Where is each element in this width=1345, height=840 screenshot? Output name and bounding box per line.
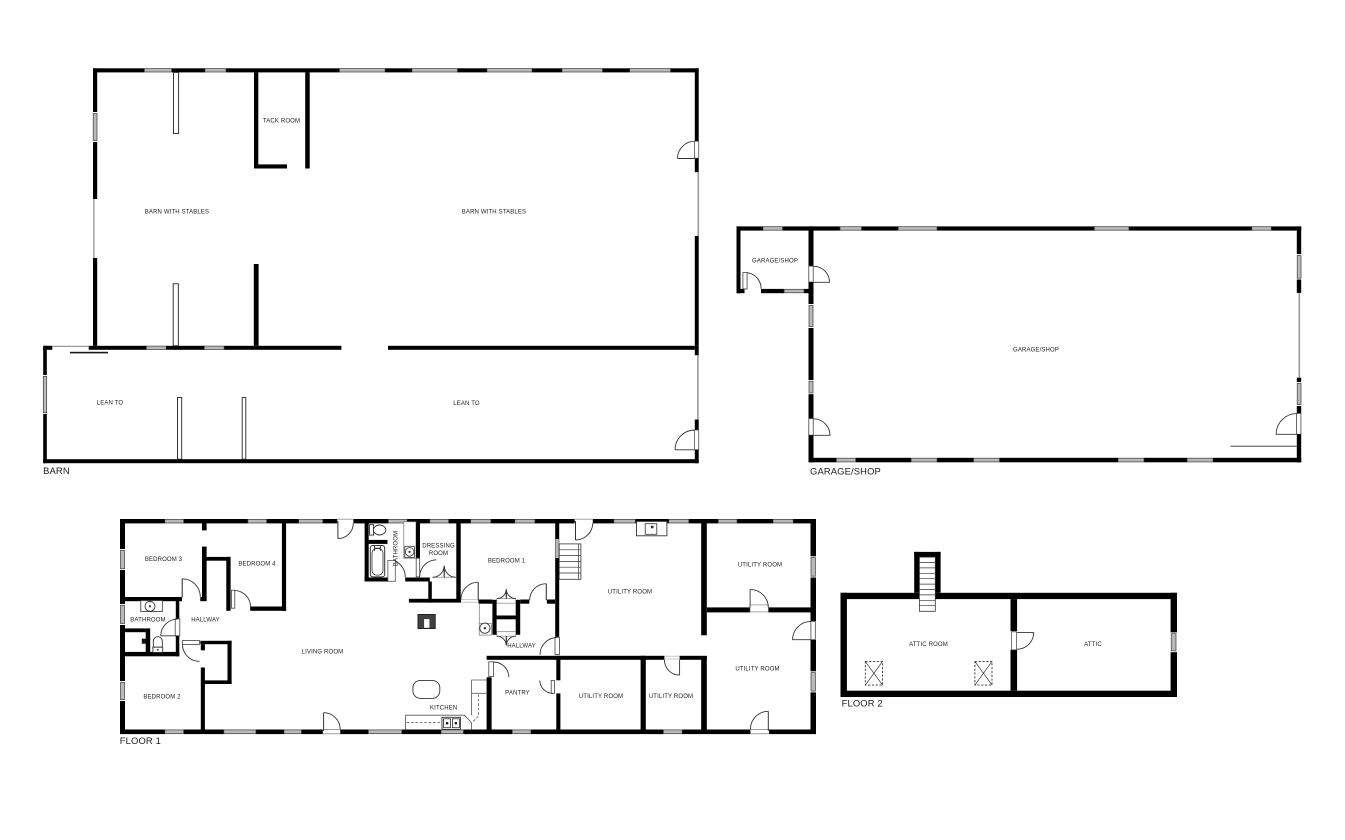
- svg-text:ROOM: ROOM: [429, 551, 448, 557]
- svg-text:HALLWAY: HALLWAY: [507, 643, 536, 649]
- svg-text:BARN WITH STABLES: BARN WITH STABLES: [462, 210, 526, 216]
- svg-text:BATHROOM: BATHROOM: [394, 531, 400, 566]
- svg-text:LEAN TO: LEAN TO: [453, 401, 480, 407]
- svg-text:BEDROOM 1: BEDROOM 1: [488, 559, 526, 565]
- svg-text:BEDROOM 3: BEDROOM 3: [145, 557, 183, 563]
- svg-text:BEDROOM 4: BEDROOM 4: [238, 562, 276, 568]
- svg-text:FLOOR 1: FLOOR 1: [120, 735, 161, 746]
- svg-text:DRESSING: DRESSING: [422, 544, 455, 550]
- svg-text:TACK ROOM: TACK ROOM: [263, 119, 300, 125]
- svg-text:BARN WITH STABLES: BARN WITH STABLES: [145, 210, 209, 216]
- svg-text:BATHROOM: BATHROOM: [130, 617, 165, 623]
- svg-text:PANTRY: PANTRY: [505, 691, 530, 697]
- svg-text:UTILITY ROOM: UTILITY ROOM: [649, 694, 693, 700]
- svg-text:BARN: BARN: [43, 465, 70, 476]
- svg-text:UTILITY ROOM: UTILITY ROOM: [735, 667, 779, 673]
- svg-text:LIVING ROOM: LIVING ROOM: [302, 649, 344, 655]
- svg-text:KITCHEN: KITCHEN: [430, 705, 457, 711]
- svg-text:GARAGE/SHOP: GARAGE/SHOP: [810, 465, 881, 476]
- svg-text:GARAGE/SHOP: GARAGE/SHOP: [1013, 348, 1059, 354]
- svg-text:BEDROOM 2: BEDROOM 2: [143, 694, 181, 700]
- svg-text:FLOOR 2: FLOOR 2: [842, 698, 883, 709]
- svg-text:HALLWAY: HALLWAY: [191, 617, 220, 623]
- svg-text:UTILITY ROOM: UTILITY ROOM: [738, 563, 782, 569]
- svg-text:GARAGE/SHOP: GARAGE/SHOP: [752, 259, 798, 265]
- svg-text:ATTIC ROOM: ATTIC ROOM: [909, 642, 948, 648]
- svg-text:LEAN TO: LEAN TO: [97, 401, 124, 407]
- svg-text:UTILITY ROOM: UTILITY ROOM: [579, 694, 623, 700]
- svg-text:ATTIC: ATTIC: [1084, 642, 1102, 648]
- svg-text:UTILITY ROOM: UTILITY ROOM: [608, 590, 652, 596]
